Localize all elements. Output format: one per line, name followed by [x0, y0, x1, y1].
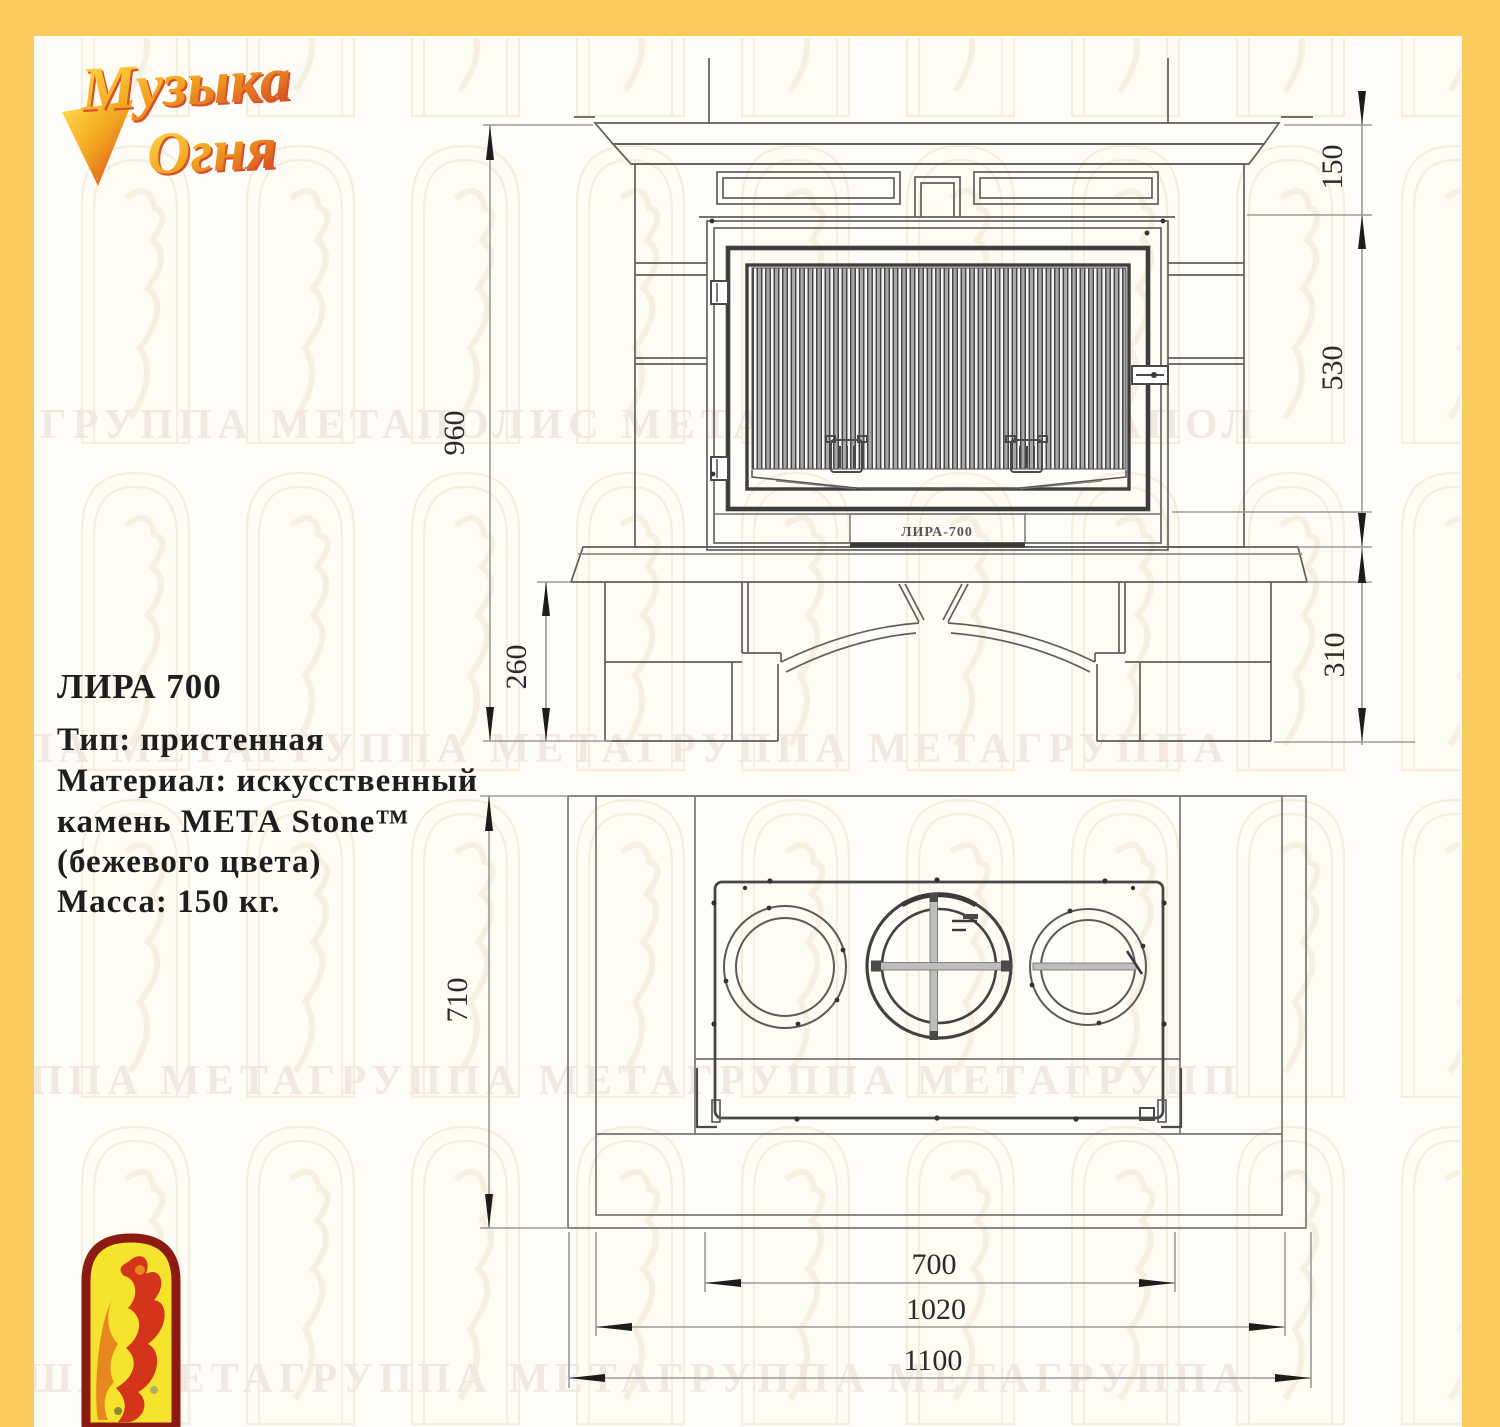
svg-text:камень МЕТА Stone™: камень МЕТА Stone™: [57, 804, 409, 840]
svg-text:Огня: Огня: [145, 114, 278, 187]
svg-text:1020: 1020: [906, 1293, 966, 1326]
svg-text:ША МЕТАГРУППА МЕТАГРУППА МЕТАГ: ША МЕТАГРУППА МЕТАГРУППА МЕТАГРУППА: [26, 1356, 1249, 1402]
svg-text:260: 260: [500, 645, 533, 690]
svg-text:530: 530: [1316, 346, 1349, 391]
svg-text:150: 150: [1316, 145, 1349, 190]
svg-text:ЛИРА-700: ЛИРА-700: [901, 525, 973, 540]
svg-text:1100: 1100: [904, 1344, 963, 1377]
svg-text:700: 700: [912, 1248, 957, 1281]
svg-text:ЛИРА 700: ЛИРА 700: [57, 667, 222, 706]
svg-text:Музыка: Музыка: [78, 45, 292, 124]
svg-text:Материал: искусственный: Материал: искусственный: [57, 763, 478, 799]
svg-text:310: 310: [1318, 633, 1351, 678]
svg-text:Масса: 150 кг.: Масса: 150 кг.: [57, 884, 280, 920]
svg-text:(бежевого цвета): (бежевого цвета): [57, 844, 321, 880]
svg-text:710: 710: [441, 978, 474, 1023]
svg-text:960: 960: [438, 411, 471, 456]
svg-text:Тип: пристенная: Тип: пристенная: [57, 722, 325, 758]
svg-text:ППА МЕТАГРУППА МЕТАГРУППА МЕТА: ППА МЕТАГРУППА МЕТАГРУППА МЕТАГРУПП: [30, 1058, 1242, 1104]
